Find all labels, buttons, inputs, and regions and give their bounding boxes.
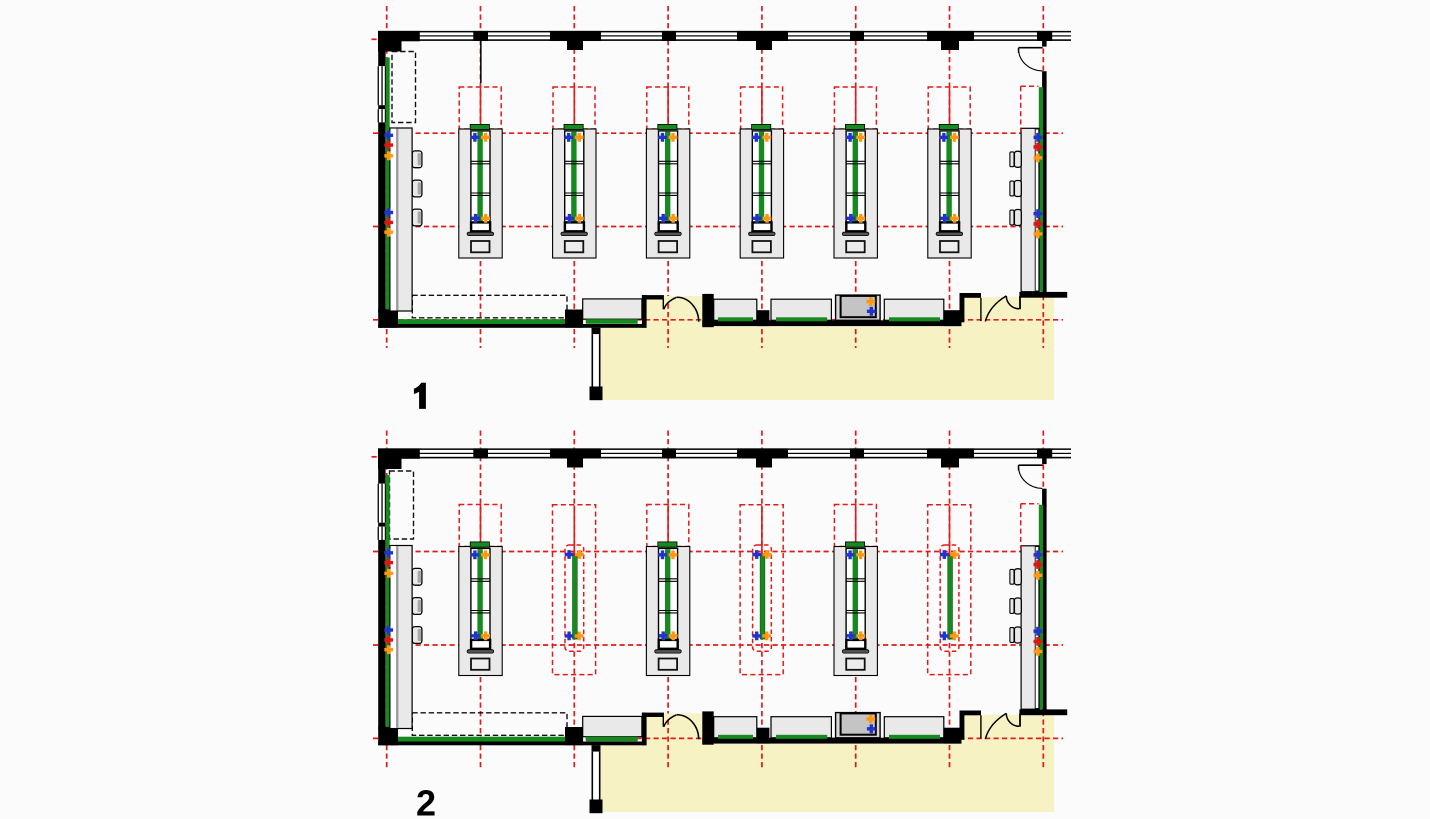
svg-text:2: 2 bbox=[416, 783, 436, 819]
